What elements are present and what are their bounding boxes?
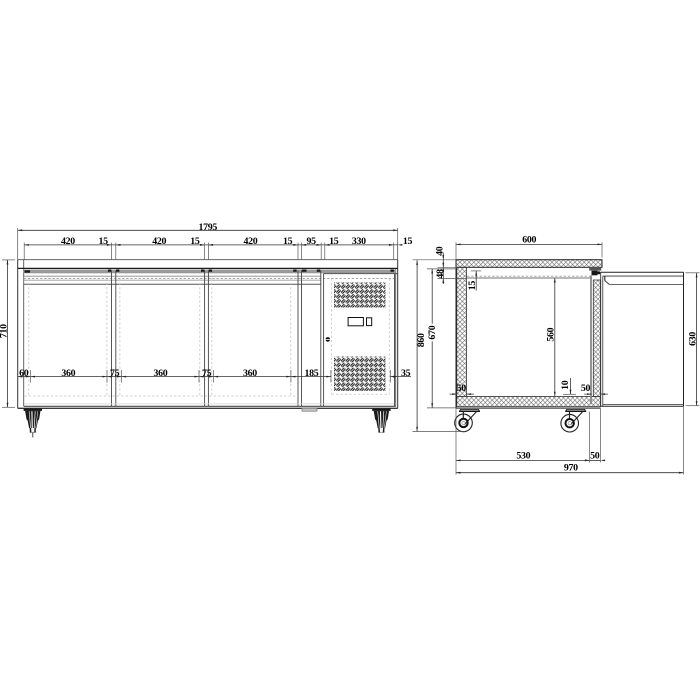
svg-text:420: 420 — [61, 236, 75, 247]
svg-text:15: 15 — [283, 236, 293, 247]
svg-text:530: 530 — [516, 450, 530, 461]
svg-text:50: 50 — [581, 383, 591, 394]
svg-text:75: 75 — [202, 368, 212, 379]
svg-text:10: 10 — [560, 380, 571, 390]
svg-text:330: 330 — [352, 236, 366, 247]
svg-text:670: 670 — [427, 325, 438, 339]
svg-text:15: 15 — [329, 236, 339, 247]
svg-text:185: 185 — [304, 368, 318, 379]
svg-text:60: 60 — [19, 368, 29, 379]
svg-text:40: 40 — [434, 246, 445, 256]
svg-text:50: 50 — [457, 383, 467, 394]
svg-text:1795: 1795 — [199, 222, 218, 233]
svg-text:15: 15 — [403, 236, 413, 247]
svg-text:560: 560 — [545, 327, 556, 341]
svg-text:360: 360 — [61, 368, 75, 379]
svg-text:35: 35 — [401, 368, 411, 379]
svg-text:15: 15 — [98, 236, 108, 247]
svg-text:48: 48 — [435, 269, 446, 279]
svg-text:50: 50 — [590, 450, 600, 461]
svg-text:75: 75 — [110, 368, 120, 379]
svg-text:420: 420 — [152, 236, 166, 247]
svg-text:970: 970 — [564, 463, 578, 474]
svg-text:710: 710 — [0, 324, 10, 338]
svg-text:15: 15 — [190, 236, 200, 247]
svg-text:15: 15 — [467, 281, 478, 291]
svg-text:600: 600 — [522, 235, 536, 246]
svg-text:95: 95 — [307, 236, 317, 247]
svg-text:360: 360 — [243, 368, 257, 379]
svg-text:360: 360 — [153, 368, 167, 379]
svg-text:630: 630 — [687, 332, 698, 346]
svg-text:860: 860 — [416, 333, 427, 347]
svg-text:420: 420 — [243, 236, 257, 247]
